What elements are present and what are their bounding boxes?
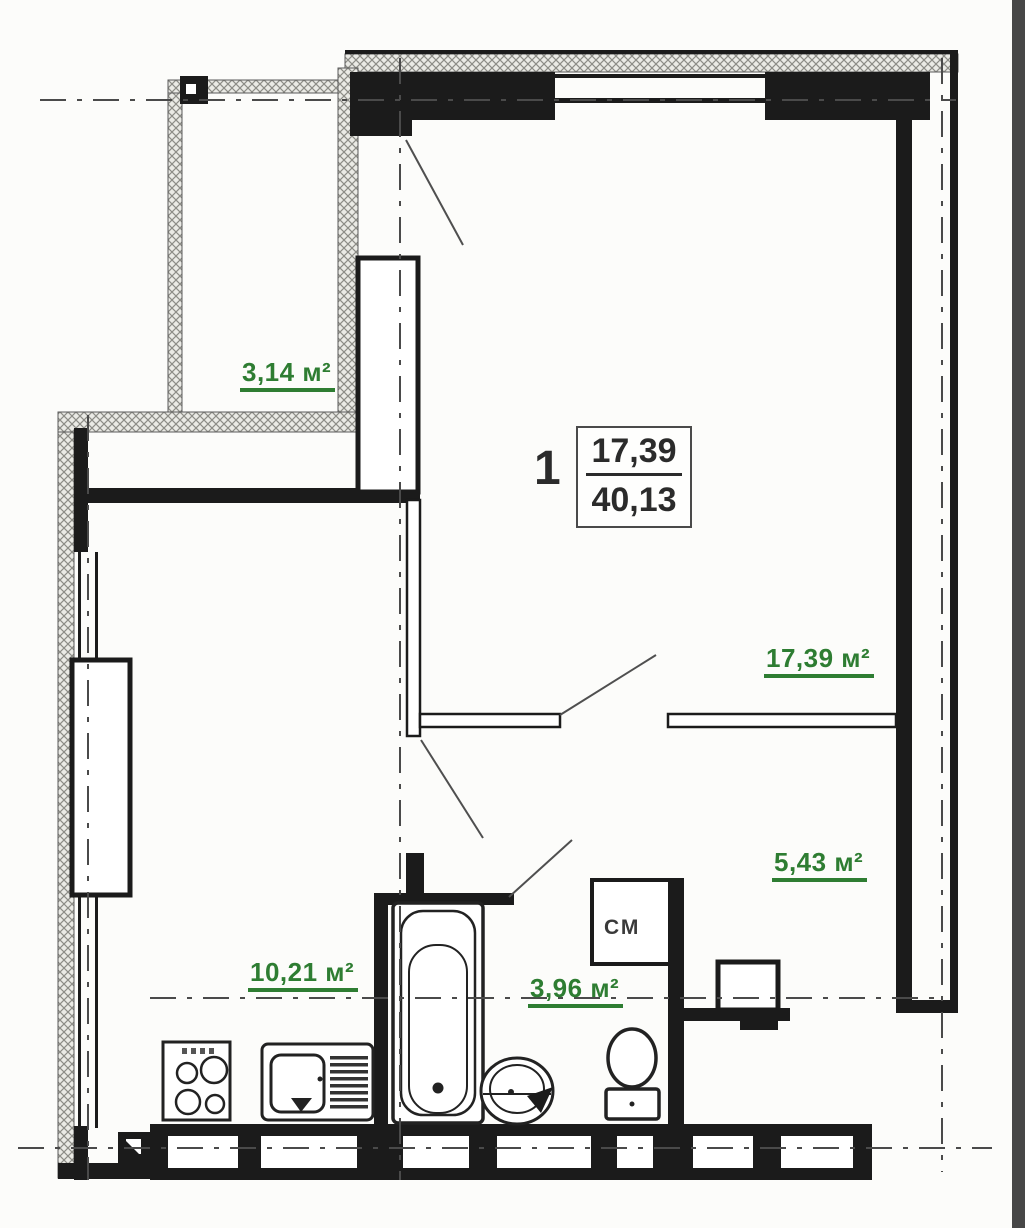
living-area-value: 17,39 [586, 430, 682, 476]
column-marker-bottom [118, 1132, 154, 1168]
total-area-value: 40,13 [578, 476, 690, 526]
plan-drawing [0, 0, 1025, 1228]
kitchen-sink [262, 1044, 373, 1120]
kitchen-area-label: 10,21 м² [248, 958, 358, 987]
partition-walls [407, 500, 896, 736]
hatched-walls [58, 54, 958, 1178]
apartment-number: 1 [534, 441, 561, 496]
image-edge-strip [1012, 0, 1025, 1228]
loggia-area-label: 3,14 м² [240, 358, 335, 387]
living-room-area-label: 17,39 м² [764, 644, 874, 673]
hallway-area-label: 5,43 м² [772, 848, 867, 877]
toilet [606, 1029, 659, 1119]
washbasin [481, 1058, 553, 1124]
bathroom-area-label: 3,96 м² [528, 974, 623, 1003]
axis-lines [18, 58, 992, 1180]
apartment-area-box: 17,39 40,13 [576, 426, 692, 528]
bottom-wall-windows [165, 1133, 856, 1171]
floor-plan: 3,14 м² 17,39 м² 5,43 м² 10,21 м² 3,96 м… [0, 0, 1025, 1228]
washing-machine-label: СМ [604, 916, 640, 940]
stove [163, 1042, 230, 1120]
bathtub [393, 903, 483, 1123]
exterior-walls [58, 50, 958, 1180]
